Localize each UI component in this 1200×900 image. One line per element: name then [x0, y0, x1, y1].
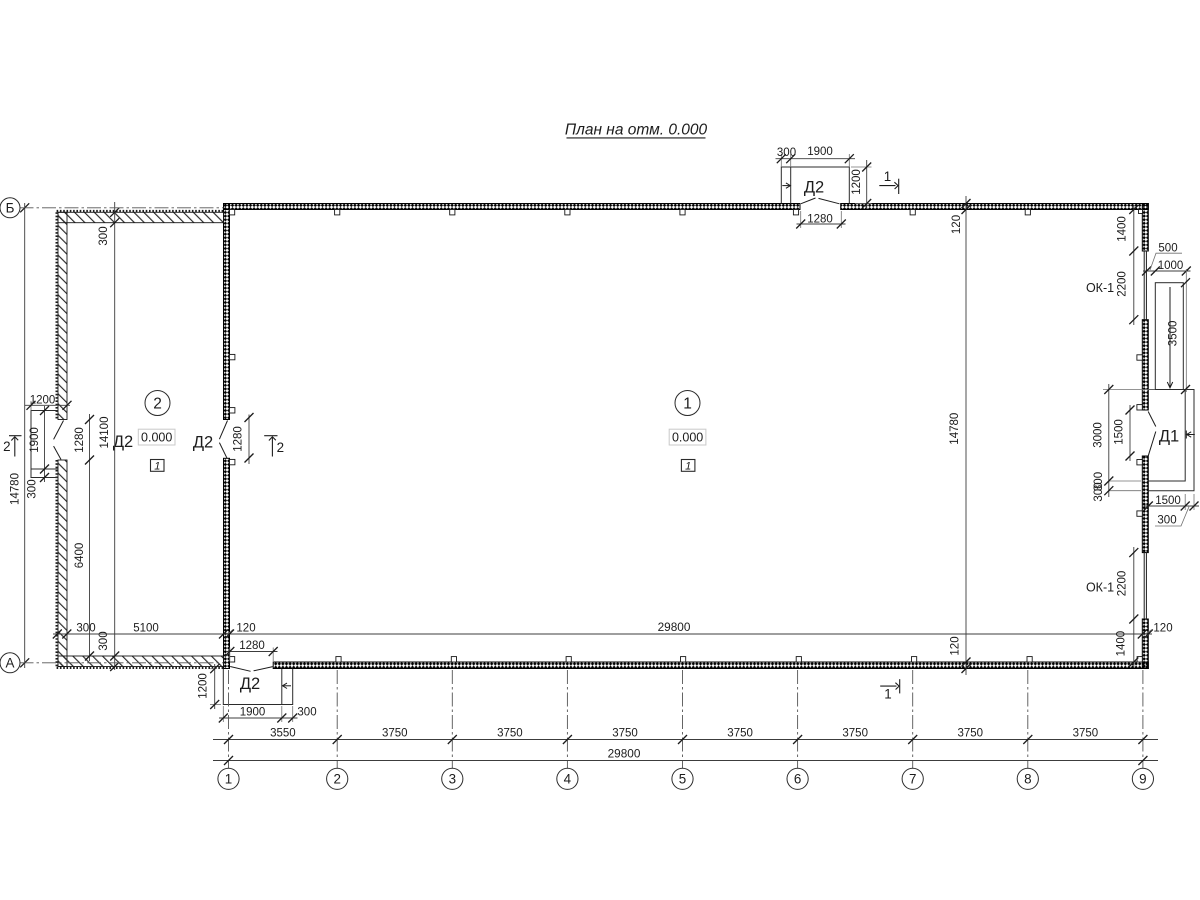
svg-text:9: 9: [1139, 771, 1146, 786]
svg-text:1500: 1500: [1114, 419, 1126, 445]
svg-text:3: 3: [449, 771, 456, 786]
svg-text:3750: 3750: [382, 728, 408, 740]
svg-text:3750: 3750: [727, 728, 753, 740]
svg-text:1500: 1500: [1155, 495, 1181, 507]
svg-text:500: 500: [1158, 243, 1177, 255]
svg-text:1: 1: [884, 687, 891, 702]
svg-text:ОК-1: ОК-1: [1086, 281, 1114, 295]
svg-text:1200: 1200: [30, 395, 56, 407]
svg-text:3550: 3550: [270, 728, 296, 740]
svg-text:2: 2: [333, 771, 340, 786]
svg-text:300: 300: [76, 623, 95, 635]
svg-text:300: 300: [27, 479, 39, 498]
svg-text:1400: 1400: [1117, 216, 1129, 242]
svg-text:14780: 14780: [10, 473, 22, 505]
svg-text:120: 120: [236, 623, 255, 635]
svg-text:3750: 3750: [958, 728, 984, 740]
svg-text:3750: 3750: [612, 728, 638, 740]
svg-text:14100: 14100: [99, 417, 111, 449]
svg-text:1: 1: [685, 460, 691, 472]
svg-text:2: 2: [153, 396, 162, 413]
svg-text:6: 6: [794, 771, 801, 786]
svg-text:300: 300: [1093, 482, 1105, 501]
svg-text:1280: 1280: [807, 214, 833, 226]
svg-text:2: 2: [3, 439, 10, 454]
svg-text:300: 300: [297, 707, 316, 719]
svg-text:Д2: Д2: [193, 434, 213, 452]
svg-text:29800: 29800: [608, 747, 641, 761]
svg-text:Д2: Д2: [804, 179, 824, 197]
svg-text:2200: 2200: [1117, 271, 1129, 297]
svg-text:120: 120: [1153, 623, 1172, 635]
svg-text:14780: 14780: [949, 413, 961, 445]
svg-text:5: 5: [679, 771, 686, 786]
svg-text:ОК-1: ОК-1: [1086, 581, 1114, 595]
svg-text:1280: 1280: [239, 640, 265, 652]
svg-text:2: 2: [277, 440, 284, 455]
svg-text:1280: 1280: [233, 426, 245, 452]
svg-text:1000: 1000: [1158, 260, 1184, 272]
svg-text:1: 1: [683, 396, 692, 413]
svg-text:1200: 1200: [851, 169, 863, 195]
svg-text:3500: 3500: [1168, 321, 1180, 347]
svg-text:4: 4: [564, 771, 572, 786]
svg-text:1400: 1400: [1116, 631, 1128, 657]
svg-text:120: 120: [951, 215, 963, 234]
svg-text:3750: 3750: [842, 728, 868, 740]
svg-text:1900: 1900: [240, 707, 266, 719]
svg-text:План на отм. 0.000: План на отм. 0.000: [565, 122, 708, 139]
svg-text:3750: 3750: [1073, 728, 1099, 740]
svg-text:0.000: 0.000: [141, 431, 172, 445]
svg-text:1900: 1900: [29, 427, 41, 453]
svg-text:3000: 3000: [1093, 422, 1105, 448]
svg-text:Д2: Д2: [113, 433, 133, 451]
svg-text:3750: 3750: [497, 728, 523, 740]
svg-text:1200: 1200: [198, 673, 210, 699]
svg-text:6400: 6400: [74, 543, 86, 569]
svg-text:1: 1: [154, 460, 160, 472]
svg-text:Д2: Д2: [240, 675, 260, 693]
svg-text:7: 7: [909, 771, 916, 786]
svg-text:29800: 29800: [658, 620, 691, 634]
svg-text:300: 300: [777, 147, 796, 159]
svg-text:1900: 1900: [807, 146, 833, 158]
svg-text:5100: 5100: [133, 623, 159, 635]
svg-text:Б: Б: [6, 200, 15, 215]
svg-text:Д1: Д1: [1159, 428, 1179, 446]
svg-text:1280: 1280: [74, 427, 86, 453]
svg-text:300: 300: [98, 226, 110, 245]
svg-text:2200: 2200: [1117, 571, 1129, 597]
svg-text:1: 1: [884, 169, 891, 184]
svg-text:300: 300: [1157, 515, 1176, 527]
svg-text:А: А: [6, 655, 15, 670]
svg-text:0.000: 0.000: [672, 431, 703, 445]
svg-text:1: 1: [225, 771, 232, 786]
svg-text:120: 120: [950, 636, 962, 655]
svg-text:8: 8: [1024, 771, 1031, 786]
